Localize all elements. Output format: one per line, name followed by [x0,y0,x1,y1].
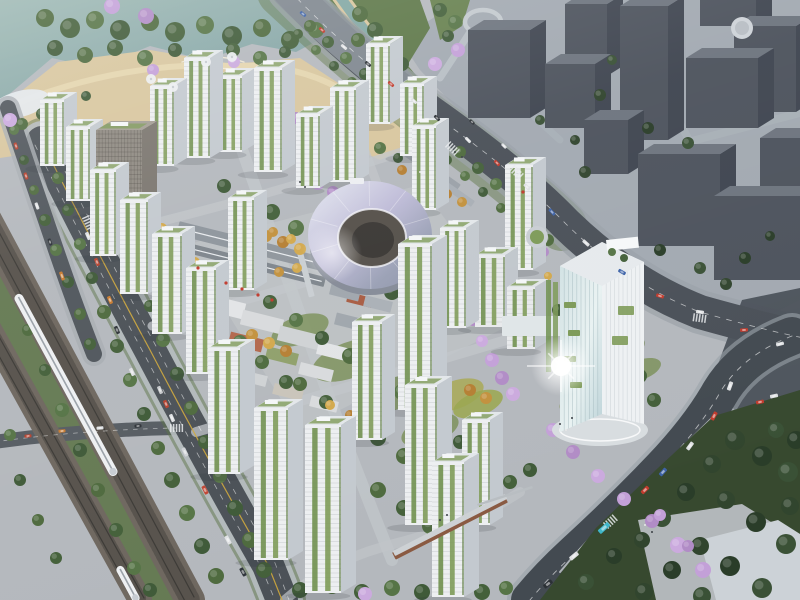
lighting-effects-layer [0,0,800,600]
atmospheric-haze [0,0,800,600]
scene-canvas [0,0,800,600]
aerial-masterplan-rendering [0,0,800,600]
